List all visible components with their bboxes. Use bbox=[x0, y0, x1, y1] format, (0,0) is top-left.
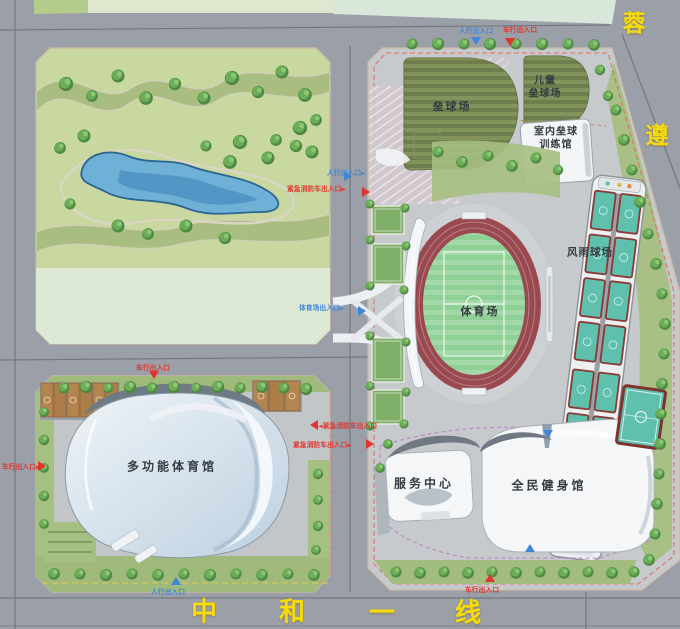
pedestrian-entrance-text: 人行出入口 bbox=[151, 589, 185, 596]
emergency-entrance-label-mid-lower: 紧急消防车出入口► bbox=[293, 439, 352, 449]
arrow-right-icon: ► bbox=[341, 186, 346, 193]
vehicle-entrance-text: 车行出入口 bbox=[503, 27, 537, 34]
vehicle-entrance-text: 车行出入口 bbox=[136, 365, 170, 372]
pedestrian-entrance-label-top: 人行出入口 bbox=[459, 25, 493, 35]
road-name-rongzun-char1: 蓉 bbox=[623, 4, 646, 38]
indoor-softball-label: 室内垒球 训练馆 bbox=[534, 127, 578, 152]
park-parcel bbox=[36, 48, 330, 344]
pedestrian-entrance-text: 人行出入口 bbox=[327, 170, 361, 177]
indoor-softball-label-line2: 训练馆 bbox=[534, 139, 578, 152]
site-plan: 垒球场 儿童 垒球场 室内垒球 训练馆 风雨球场 体育场 多功能体育馆 服务中心… bbox=[0, 0, 680, 629]
pedestrian-entrance-label-west: 人行出入口► bbox=[327, 167, 366, 177]
arrow-right-icon: ► bbox=[347, 442, 352, 449]
road-name-zhonghe-char1: 中 bbox=[191, 592, 217, 629]
site-plan-drawing bbox=[0, 0, 680, 629]
vehicle-entrance-label-top: 车行出入口 bbox=[503, 24, 537, 34]
gym-parcel bbox=[36, 376, 331, 592]
pedestrian-entrance-label-bottom: 人行出入口 bbox=[151, 586, 185, 596]
service-center-label: 服务中心 bbox=[394, 477, 454, 492]
children-softball-label: 儿童 垒球场 bbox=[529, 76, 562, 101]
road-name-zhonghe-char3: 一 bbox=[369, 593, 395, 629]
road-name-zhonghe-char2: 和 bbox=[279, 592, 305, 629]
arrow-right-icon: ► bbox=[340, 305, 345, 312]
sports-parcel bbox=[333, 38, 680, 590]
covered-courts-label: 风雨球场 bbox=[567, 246, 613, 259]
children-softball-label-line2: 垒球场 bbox=[529, 88, 562, 101]
stadium-gate-label: 体育场出入口► bbox=[299, 302, 345, 312]
softball-field-label: 垒球场 bbox=[433, 100, 472, 114]
vehicle-entrance-label-gym: 车行出入口 bbox=[136, 362, 170, 372]
fitness-hall-label: 全民健身馆 bbox=[511, 479, 586, 494]
indoor-softball-label-line1: 室内垒球 bbox=[534, 127, 578, 140]
road-name-rongzun-char2: 遵 bbox=[646, 116, 669, 150]
stadium bbox=[394, 204, 554, 404]
pedestrian-entrance-text: 人行出入口 bbox=[459, 28, 493, 35]
road-name-zhonghe-char4: 线 bbox=[455, 593, 481, 629]
emergency-entrance-text: 紧急消防车出入口 bbox=[293, 442, 347, 449]
children-softball-label-line1: 儿童 bbox=[529, 76, 562, 89]
emergency-entrance-text: 紧急消防车出入口 bbox=[287, 186, 341, 193]
vehicle-entrance-text: 车行出入口 bbox=[2, 464, 36, 471]
emergency-entrance-label-mid-upper: ◄紧急消防车出入口 bbox=[318, 420, 377, 430]
vehicle-entrance-label-left: 车行出入口► bbox=[2, 461, 41, 471]
stadium-label: 体育场 bbox=[461, 305, 500, 319]
arrow-right-icon: ► bbox=[361, 170, 366, 177]
multi-gym-label: 多功能体育馆 bbox=[127, 460, 217, 475]
stadium-gate-text: 体育场出入口 bbox=[299, 305, 340, 312]
emergency-entrance-label-west: 紧急消防车出入口► bbox=[287, 183, 346, 193]
arrow-right-icon: ► bbox=[36, 464, 41, 471]
emergency-entrance-text: 紧急消防车出入口 bbox=[323, 423, 377, 430]
